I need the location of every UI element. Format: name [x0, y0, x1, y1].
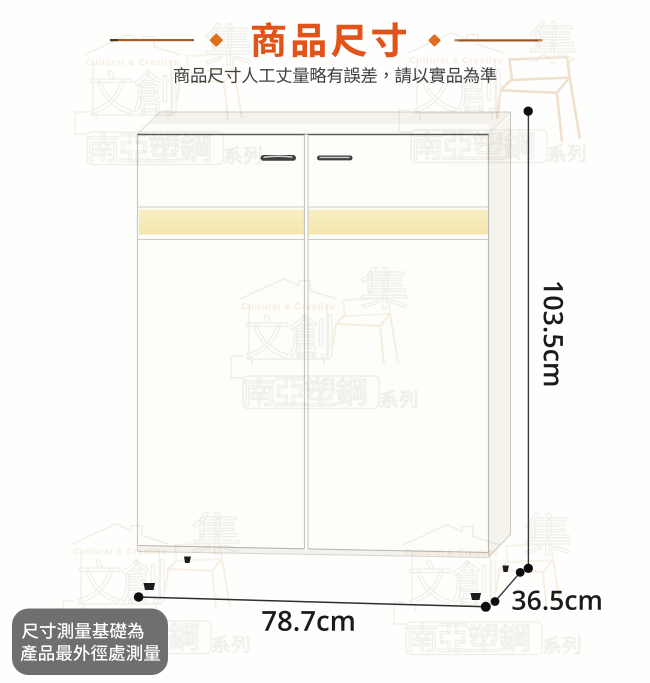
svg-text:Cultural & Creative: Cultural & Creative [404, 548, 498, 558]
svg-text:Cultural & Creative: Cultural & Creative [73, 547, 167, 557]
svg-text:Cultural & Creative: Cultural & Creative [85, 58, 179, 68]
svg-text:Cultural & Creative: Cultural & Creative [241, 302, 335, 312]
svg-text:Cultural & Creative: Cultural & Creative [409, 56, 503, 66]
